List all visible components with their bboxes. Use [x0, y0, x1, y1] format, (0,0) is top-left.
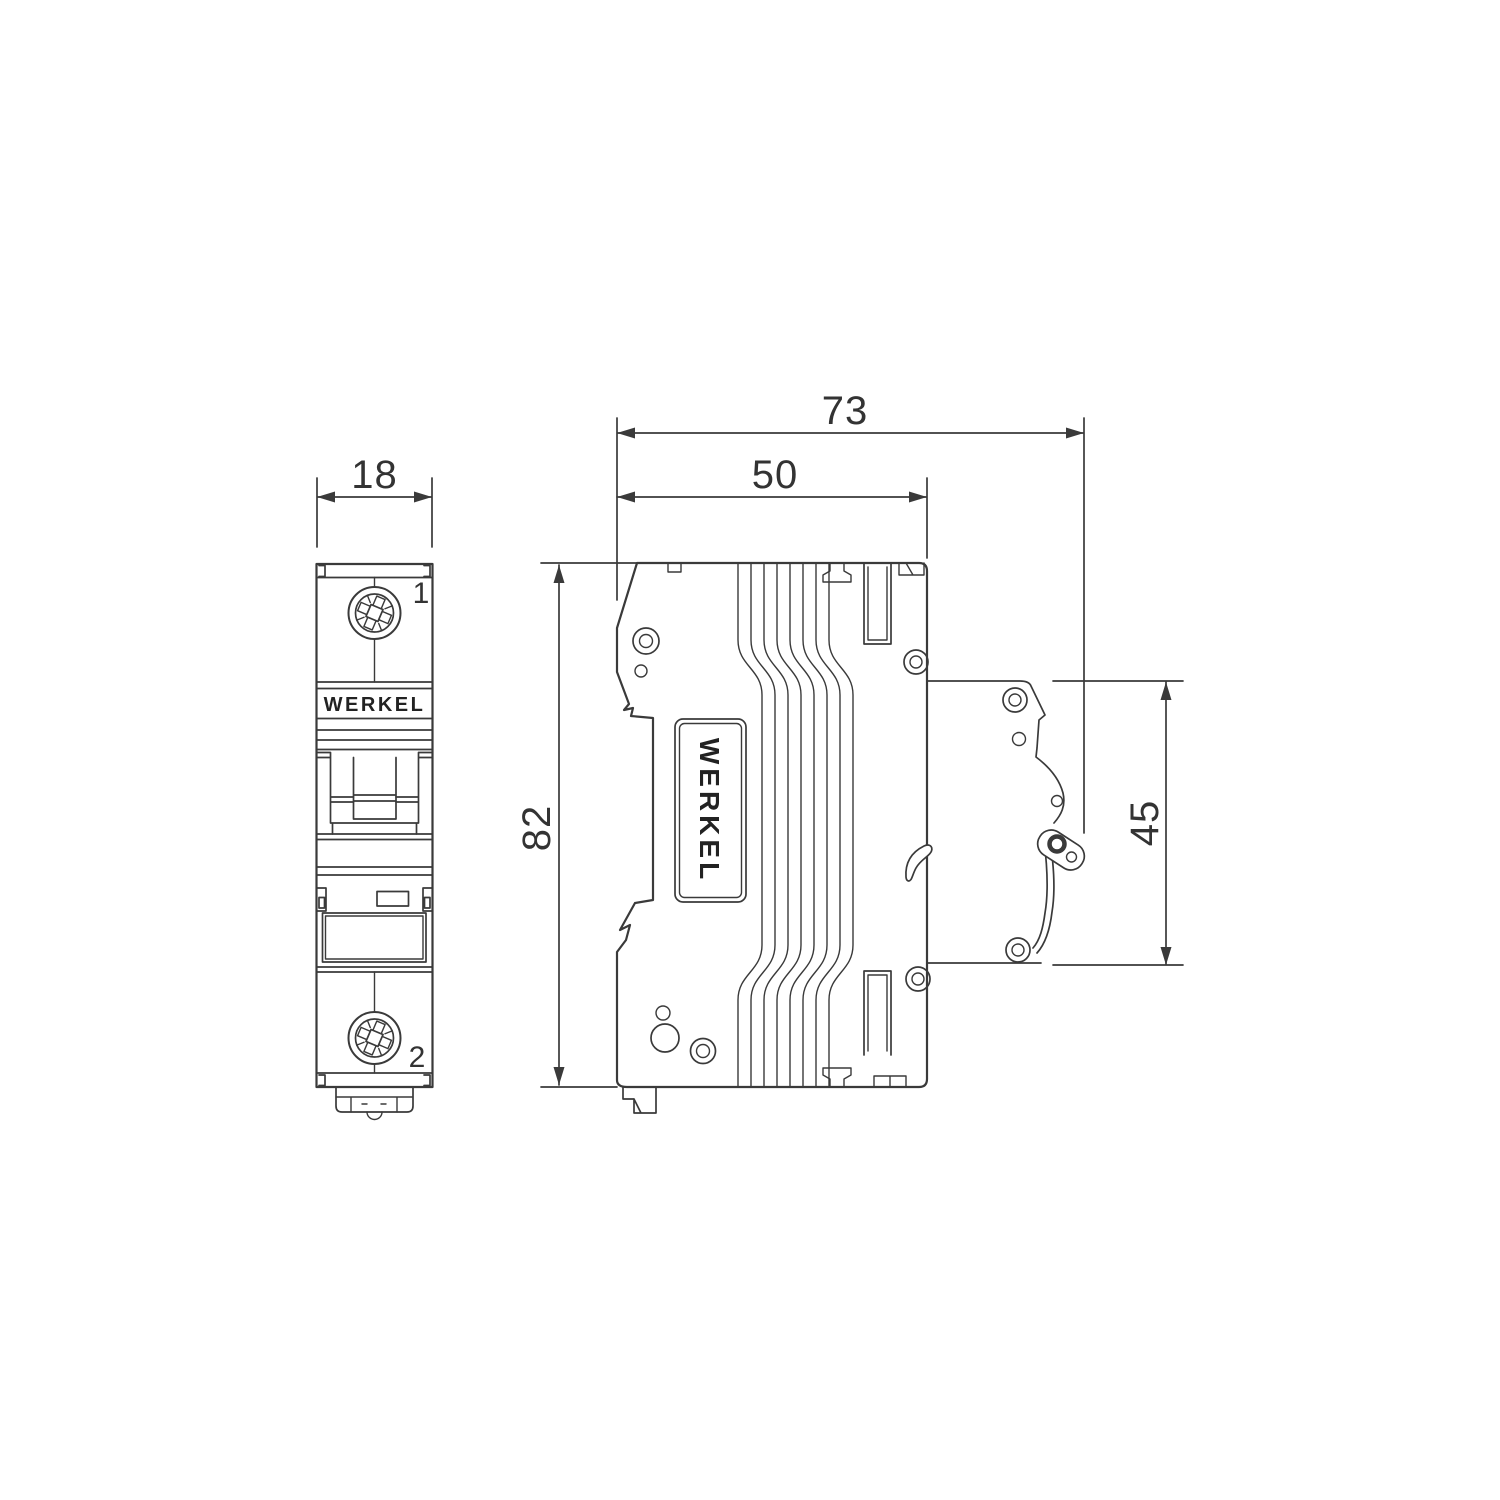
dimension-50: 50 — [617, 453, 927, 558]
dimension-45: 45 — [1053, 681, 1183, 965]
front-recess-outer — [323, 913, 427, 962]
dim-body-depth: 50 — [752, 453, 799, 497]
side-body-outline — [617, 563, 927, 1087]
front-rib-lines — [317, 730, 433, 750]
side-view: WERKEL — [617, 563, 1089, 1113]
latch-lever-icon — [1033, 825, 1090, 875]
din-clip-icon — [336, 1087, 413, 1120]
breaker-dimension-drawing: 1 WERKEL 2 — [0, 0, 1500, 1500]
terminal-screw-2-icon — [349, 1012, 401, 1064]
toggle-switch — [317, 753, 433, 876]
front-view: 1 WERKEL 2 — [317, 564, 433, 1120]
front-brand-label: WERKEL — [324, 694, 426, 716]
terminal-2-label: 2 — [409, 1041, 426, 1074]
front-bottom-strip — [317, 1073, 433, 1086]
latch-lever-arm — [927, 836, 1054, 963]
dim-din-section: 45 — [1123, 800, 1167, 847]
front-recess-inner — [326, 916, 424, 959]
dimension-82: 82 — [515, 563, 637, 1087]
case-seam-band — [738, 563, 853, 1087]
rating-label-window — [377, 892, 409, 907]
dim-front-width: 18 — [351, 453, 398, 497]
vent-slots — [864, 563, 891, 1055]
front-lower-section — [317, 888, 433, 972]
side-brand-label: WERKEL — [694, 738, 725, 883]
terminal-screw-1-icon — [349, 587, 401, 639]
dim-height: 82 — [515, 805, 559, 852]
dimension-73: 73 — [617, 389, 1084, 833]
toggle-lever — [354, 758, 397, 820]
terminal-1-label: 1 — [413, 577, 430, 610]
din-tab-icon — [623, 1087, 656, 1113]
upper-terminal-shroud — [927, 681, 1064, 823]
side-latch-tabs — [318, 888, 432, 911]
drawing-canvas: 1 WERKEL 2 — [0, 0, 1500, 1500]
dim-overall-depth: 73 — [822, 389, 869, 433]
dimension-18: 18 — [317, 453, 432, 547]
side-brand-plate: WERKEL — [675, 719, 746, 902]
front-top-strip — [317, 566, 433, 578]
